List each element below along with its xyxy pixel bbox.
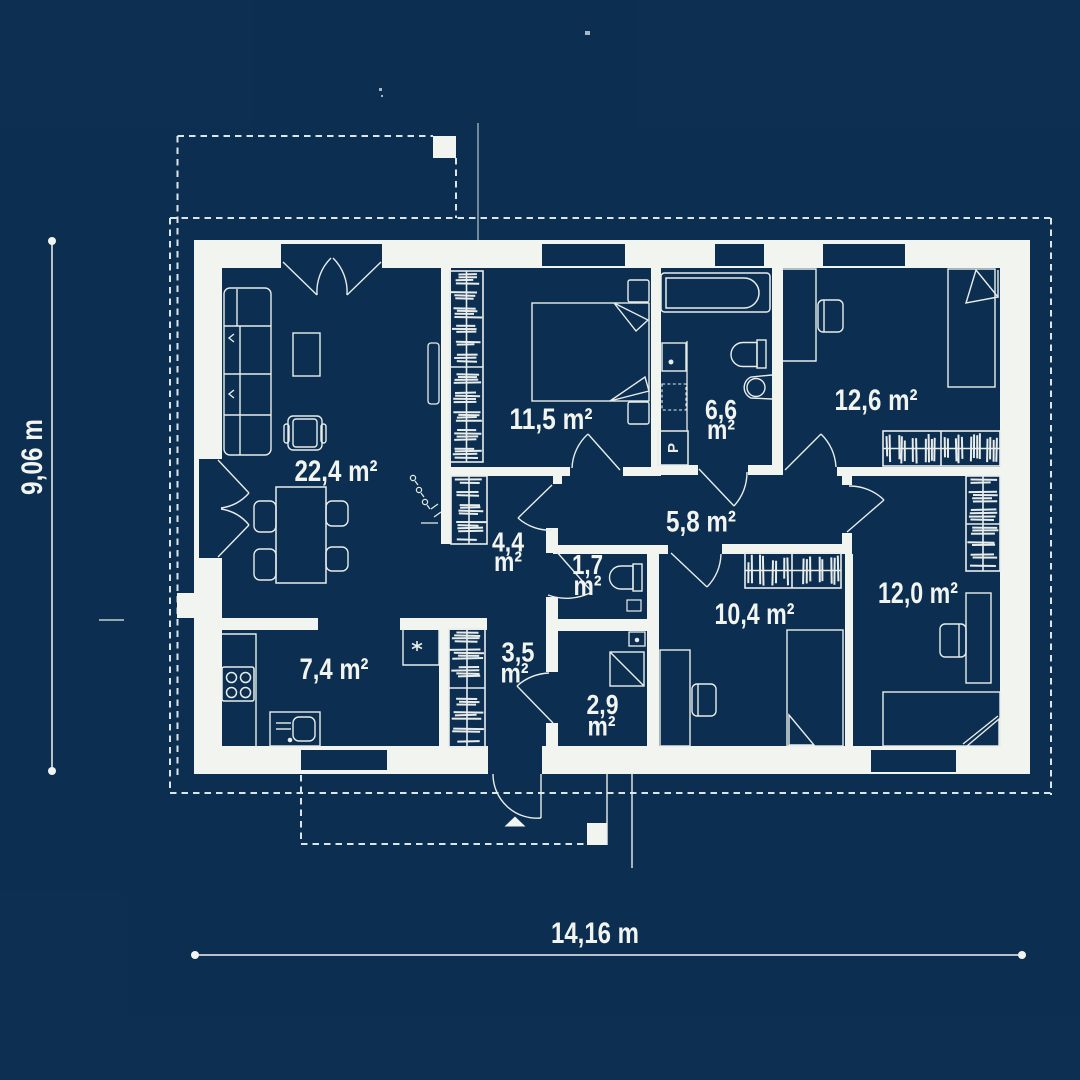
svg-text:m²: m²	[494, 546, 522, 577]
svg-text:11,5 m²: 11,5 m²	[510, 403, 593, 436]
svg-text:m²: m²	[588, 711, 616, 742]
svg-text:9,06 m: 9,06 m	[16, 419, 49, 495]
svg-text:12,6 m²: 12,6 m²	[835, 384, 918, 417]
svg-text:m²: m²	[574, 570, 602, 601]
svg-text:12,0 m²: 12,0 m²	[878, 577, 958, 610]
svg-text:10,4 m²: 10,4 m²	[715, 598, 795, 631]
svg-text:22,4 m²: 22,4 m²	[295, 455, 378, 488]
svg-text:7,4 m²: 7,4 m²	[300, 653, 369, 686]
svg-text:5,8 m²: 5,8 m²	[666, 506, 736, 539]
svg-text:P: P	[665, 443, 682, 453]
svg-text:14,16 m: 14,16 m	[551, 917, 639, 950]
svg-text:m²: m²	[707, 414, 735, 445]
svg-text:m²: m²	[501, 658, 529, 689]
